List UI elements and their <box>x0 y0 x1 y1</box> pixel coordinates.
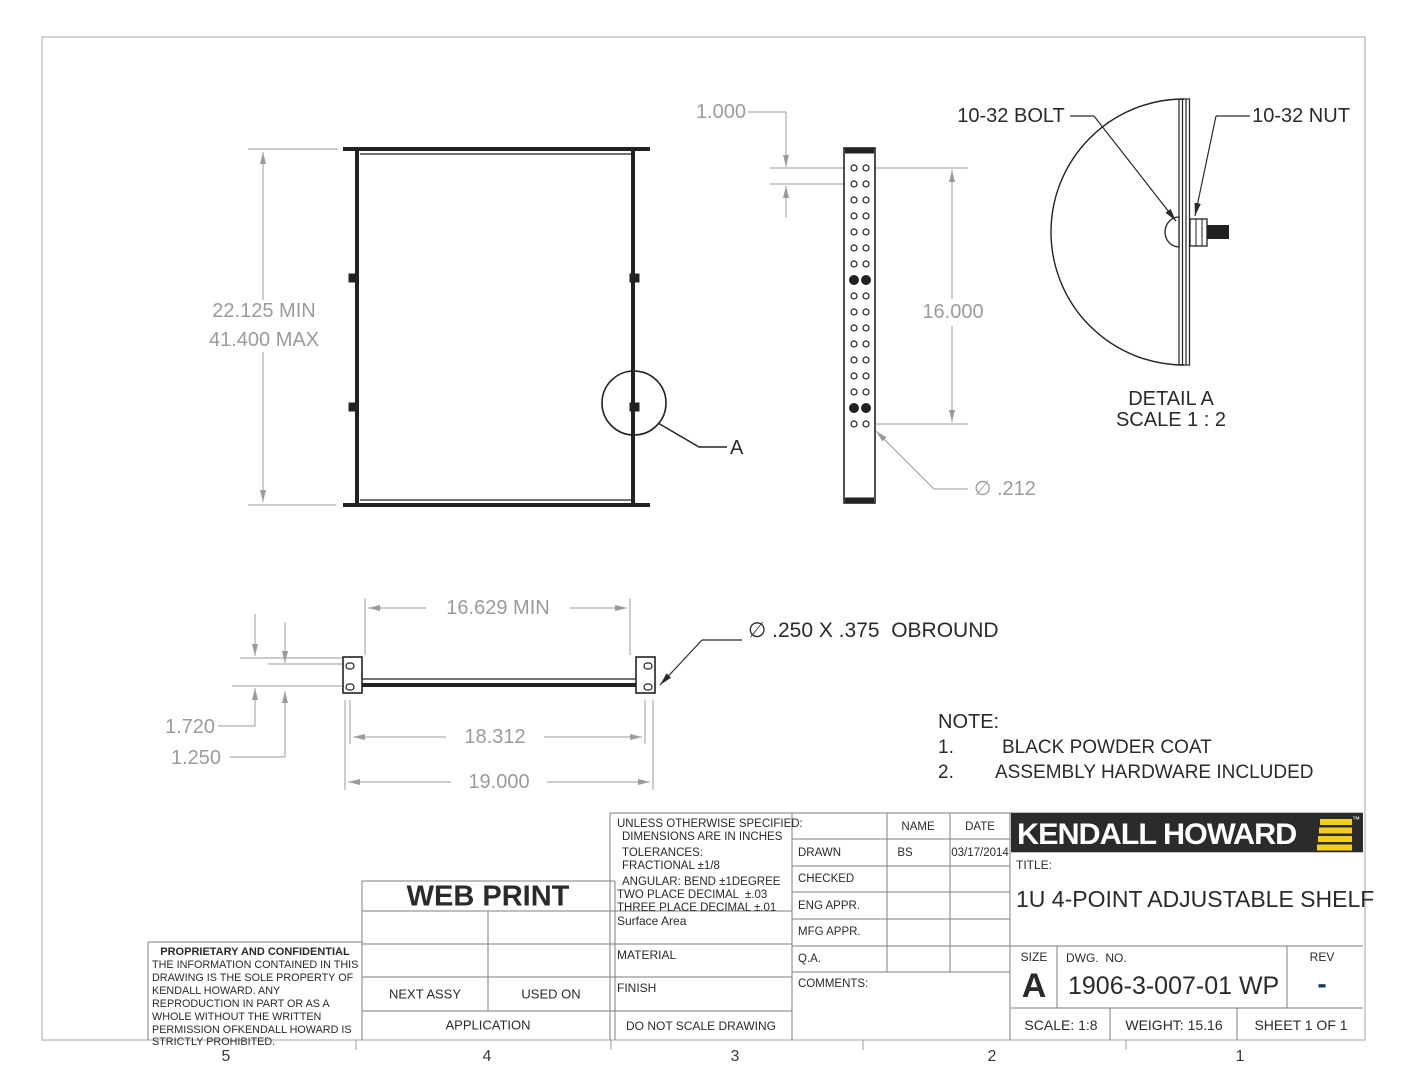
do-not-scale-label: DO NOT SCALE DRAWING <box>626 1019 776 1033</box>
approval-row-label: Q.A. <box>798 953 821 965</box>
trademark-mark: ™ <box>1352 815 1360 824</box>
tolerance-line-3: TOLERANCES: <box>622 847 703 860</box>
material-label: MATERIAL <box>617 948 676 962</box>
next-assy-label: NEXT ASSY <box>389 987 461 1002</box>
tolerance-line-4: FRACTIONAL ±1/8 <box>622 860 720 873</box>
proprietary-body: THE INFORMATION CONTAINED IN THIS DRAWIN… <box>152 959 360 1049</box>
approval-row-label: CHECKED <box>798 873 854 885</box>
approval-row-label: MFG APPR. <box>798 926 861 938</box>
tolerance-line-6: TWO PLACE DECIMAL ±.03 <box>617 889 767 902</box>
used-on-label: USED ON <box>521 987 580 1002</box>
tolerance-line-5: ANGULAR: BEND ±1DEGREE <box>622 876 780 889</box>
size-value: A <box>1022 969 1047 1003</box>
title-block-linework <box>0 0 1408 1088</box>
zone-number: 1 <box>1236 1048 1245 1066</box>
tolerance-line-1: UNLESS OTHERWISE SPECIFIED: <box>617 818 803 831</box>
zone-number: 3 <box>731 1048 740 1066</box>
size-label: SIZE <box>1021 950 1048 964</box>
approval-row-name: BS <box>897 847 912 859</box>
rev-value: - <box>1317 968 1326 1000</box>
finish-label: FINISH <box>617 981 656 995</box>
surface-area-label: Surface Area <box>617 914 686 928</box>
rev-label: REV <box>1310 950 1335 964</box>
dwg-no-value: 1906-3-007-01 WP <box>1068 974 1279 999</box>
zone-number: 4 <box>483 1048 492 1066</box>
drawing-title: 1U 4-POINT ADJUSTABLE SHELF <box>1016 888 1374 911</box>
title-label: TITLE: <box>1016 858 1052 872</box>
kendall-howard-logo: KENDALL HOWARD <box>1017 818 1296 852</box>
zone-number: 5 <box>222 1048 231 1066</box>
drawing-sheet: 22.125 MIN 41.400 MAX A 1.000 16.000 ∅ .… <box>0 0 1408 1088</box>
web-print-stamp: WEB PRINT <box>407 883 570 912</box>
dwg-no-label: DWG. NO. <box>1066 951 1127 965</box>
scale-value: SCALE: 1:8 <box>1024 1017 1097 1033</box>
approval-row-date: 03/17/2014 <box>951 847 1009 859</box>
tolerance-line-2: DIMENSIONS ARE IN INCHES <box>622 831 782 844</box>
weight-value: WEIGHT: 15.16 <box>1125 1017 1222 1033</box>
date-header: DATE <box>965 821 995 833</box>
approval-row-label: DRAWN <box>798 847 841 859</box>
name-header: NAME <box>901 821 934 833</box>
proprietary-heading: PROPRIETARY AND CONFIDENTIAL <box>160 946 349 958</box>
sheet-value: SHEET 1 OF 1 <box>1254 1017 1347 1033</box>
comments-label: COMMENTS: <box>798 978 868 990</box>
application-label: APPLICATION <box>445 1018 530 1033</box>
zone-number: 2 <box>988 1048 997 1066</box>
approval-row-label: ENG APPR. <box>798 900 860 912</box>
